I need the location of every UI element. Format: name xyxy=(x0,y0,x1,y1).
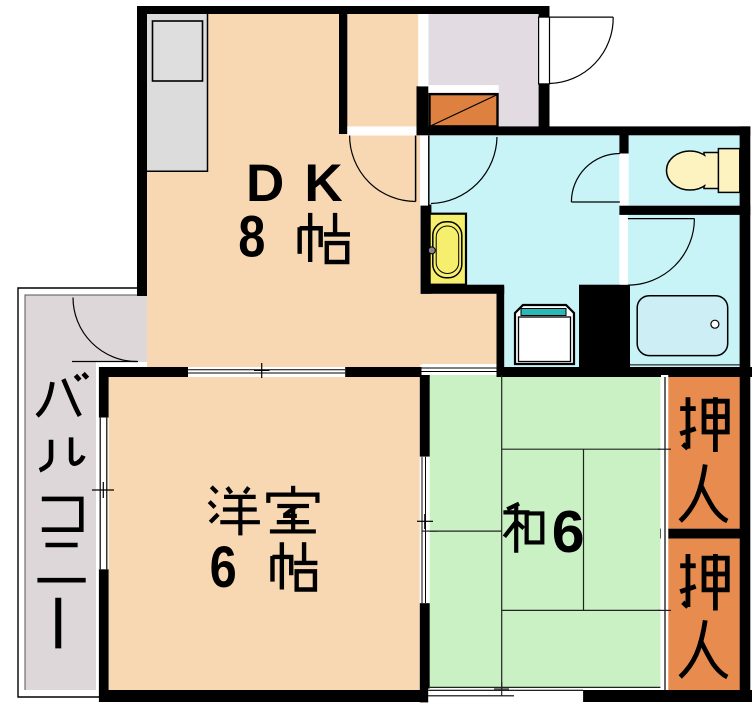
svg-text:8: 8 xyxy=(238,206,265,270)
svg-text:K: K xyxy=(304,154,342,213)
svg-text:6: 6 xyxy=(552,499,585,565)
svg-text:D: D xyxy=(246,154,284,213)
svg-text:6: 6 xyxy=(210,536,237,600)
